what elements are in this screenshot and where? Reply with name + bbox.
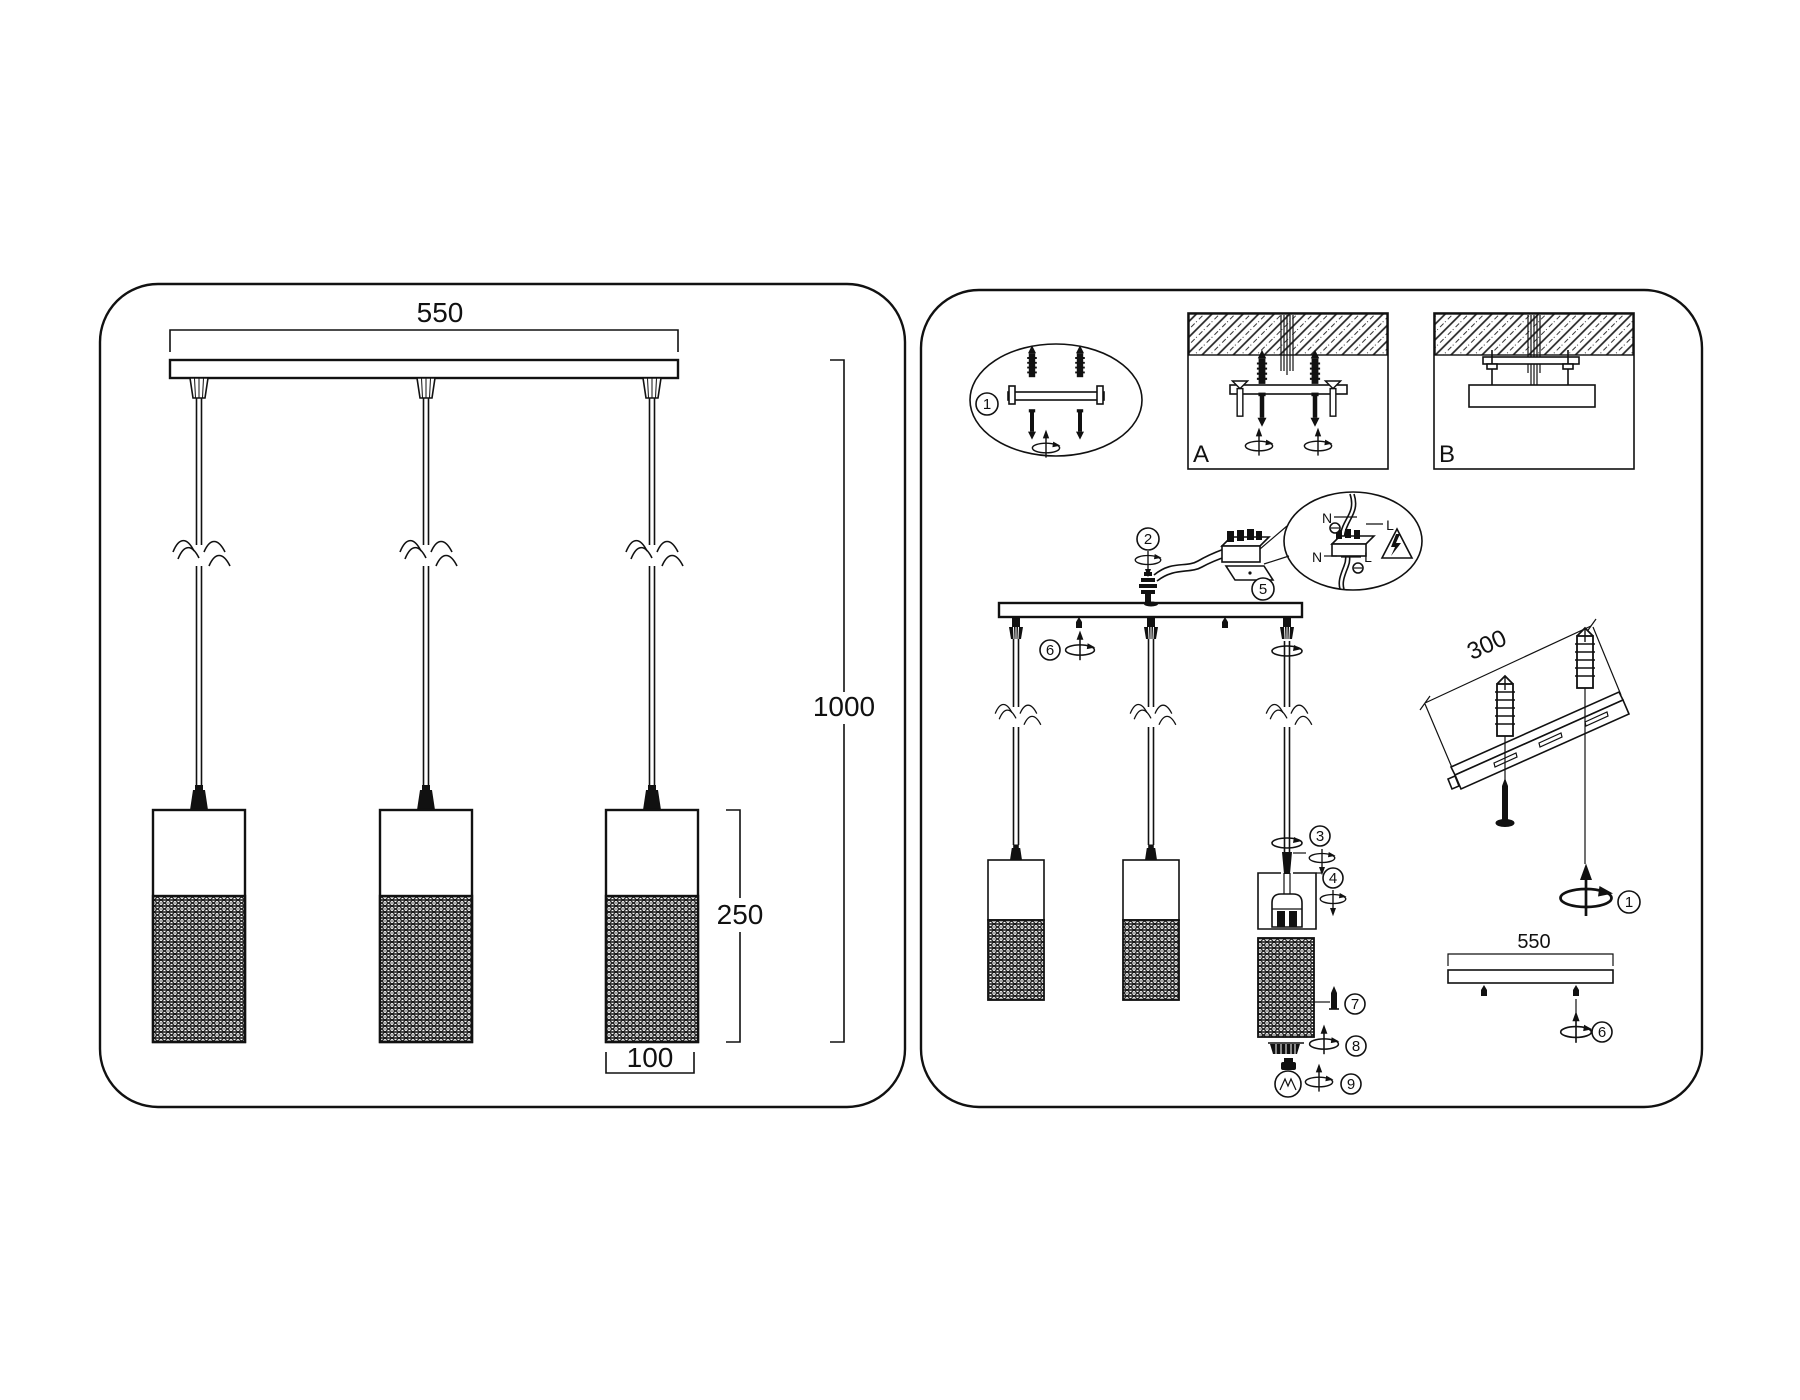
dim-shade-height-250: 250	[712, 810, 768, 1042]
turn-icon	[1561, 1011, 1593, 1043]
terminal-block	[1222, 529, 1269, 562]
dim-shade-width-100: 100	[606, 1042, 694, 1073]
pendant-drop-3	[606, 378, 698, 1042]
screw-icon	[1311, 393, 1320, 427]
mounting-variant-a: A	[1188, 313, 1388, 469]
turn-icon	[1272, 645, 1302, 656]
wire-n-label: N	[1312, 549, 1322, 565]
wall-plug-icon	[1027, 345, 1037, 377]
exploded-drop-3: 3 4	[1258, 617, 1366, 1097]
wiring-detail: N L N L	[1284, 492, 1422, 590]
screw-icon	[1222, 617, 1228, 628]
step-6-marker-bar: 6	[1592, 1022, 1612, 1042]
lamp-socket	[1272, 894, 1302, 927]
screw-icon	[1076, 409, 1084, 439]
turn-icon	[1320, 890, 1346, 916]
step-4-marker: 4	[1323, 868, 1343, 888]
step-1-marker: 1	[976, 393, 998, 415]
right-panel-assembly-instructions: 1 A B	[921, 290, 1702, 1107]
wire	[1157, 556, 1228, 581]
svg-text:1: 1	[983, 396, 991, 413]
shade-screw	[1329, 986, 1339, 1009]
turn-icon	[1272, 837, 1302, 848]
bar-detail: 550 6	[1448, 931, 1613, 1043]
dim-height-1000: 1000	[806, 360, 882, 1042]
shade-mesh	[1123, 920, 1179, 1000]
exploded-canopy-assembly: 2	[1135, 526, 1289, 604]
exploded-drop-2	[1123, 617, 1179, 1000]
dim-width-label: 550	[417, 297, 464, 328]
svg-text:4: 4	[1329, 870, 1337, 887]
exploded-pendant: 6	[988, 602, 1366, 1098]
turn-icon	[1032, 430, 1060, 458]
canopy-bar-part	[1448, 970, 1613, 983]
bulb-icon	[1275, 1058, 1301, 1097]
turn-icon	[1066, 630, 1096, 660]
dim-width-550: 550	[170, 297, 678, 352]
screw-icon	[1481, 985, 1487, 996]
step-5-marker: 5	[1252, 578, 1274, 600]
svg-text:1: 1	[1625, 894, 1633, 911]
screw-icon	[1258, 393, 1267, 427]
screw-icon	[1076, 617, 1082, 628]
bar-dim-label: 550	[1517, 931, 1550, 953]
turn-icon	[1245, 428, 1273, 456]
shade-ring	[1268, 1043, 1304, 1054]
step-8-marker: 8	[1346, 1036, 1366, 1056]
wall-plug-icon	[1575, 628, 1595, 688]
step1-bracket-detail: 1	[970, 344, 1142, 458]
step-7-marker: 7	[1345, 994, 1365, 1014]
wire-l-label: L	[1386, 517, 1394, 533]
svg-text:8: 8	[1352, 1038, 1360, 1055]
dim-height-label: 1000	[813, 691, 875, 722]
screw-icon	[1573, 985, 1579, 996]
wall-plug-icon	[1495, 676, 1515, 736]
screw-icon	[1496, 778, 1514, 827]
turn-icon	[1561, 864, 1614, 917]
svg-text:3: 3	[1316, 828, 1324, 845]
shade-mesh	[380, 896, 472, 1042]
ceiling-hatch	[1189, 314, 1387, 355]
step-3-marker: 3	[1310, 826, 1330, 846]
shade-mesh	[988, 920, 1044, 1000]
shade-body	[1123, 860, 1179, 920]
dim-shade-width-label: 100	[627, 1042, 674, 1073]
shade-body	[988, 860, 1044, 920]
wire-l-label: L	[1364, 549, 1372, 565]
wire-n-label: N	[1322, 510, 1332, 526]
variant-a-label: A	[1193, 441, 1209, 468]
svg-text:7: 7	[1351, 996, 1359, 1013]
left-panel-dimension-drawing: 550	[100, 284, 905, 1107]
wall-plug-icon	[1075, 345, 1085, 377]
canopy-mounted	[1469, 385, 1595, 407]
shade-mesh-part	[1258, 938, 1314, 1037]
svg-text:2: 2	[1144, 531, 1152, 548]
instruction-sheet: 550	[0, 0, 1800, 1400]
cord-grip	[1282, 852, 1292, 874]
mounting-variant-b: B	[1434, 313, 1634, 469]
dim-shade-height-label: 250	[717, 899, 764, 930]
variant-b-label: B	[1439, 441, 1455, 468]
svg-text:9: 9	[1347, 1076, 1355, 1093]
shade-mesh	[153, 896, 245, 1042]
step-6-marker: 6	[1040, 640, 1060, 660]
pendant-drop-2	[380, 378, 472, 1042]
rail-dim-label: 300	[1463, 625, 1511, 666]
svg-text:5: 5	[1259, 581, 1267, 598]
step-2-marker: 2	[1137, 528, 1159, 550]
electric-warning-icon	[1382, 529, 1412, 558]
shade-mesh	[606, 896, 698, 1042]
step-1-marker-rail: 1	[1618, 891, 1640, 913]
turn-icon	[1305, 1064, 1333, 1092]
mounting-bracket	[1483, 357, 1579, 364]
rail-detail: 300 1	[1420, 619, 1640, 916]
mounting-bracket	[1008, 392, 1104, 400]
step-9-marker: 9	[1341, 1074, 1361, 1094]
turn-icon	[1304, 428, 1332, 456]
pendant-drop-1	[153, 378, 245, 1042]
canopy-bar	[170, 360, 678, 378]
svg-text:6: 6	[1598, 1024, 1606, 1041]
svg-text:6: 6	[1046, 642, 1054, 659]
screw-icon	[1028, 409, 1036, 439]
exploded-drop-1	[988, 617, 1044, 1000]
